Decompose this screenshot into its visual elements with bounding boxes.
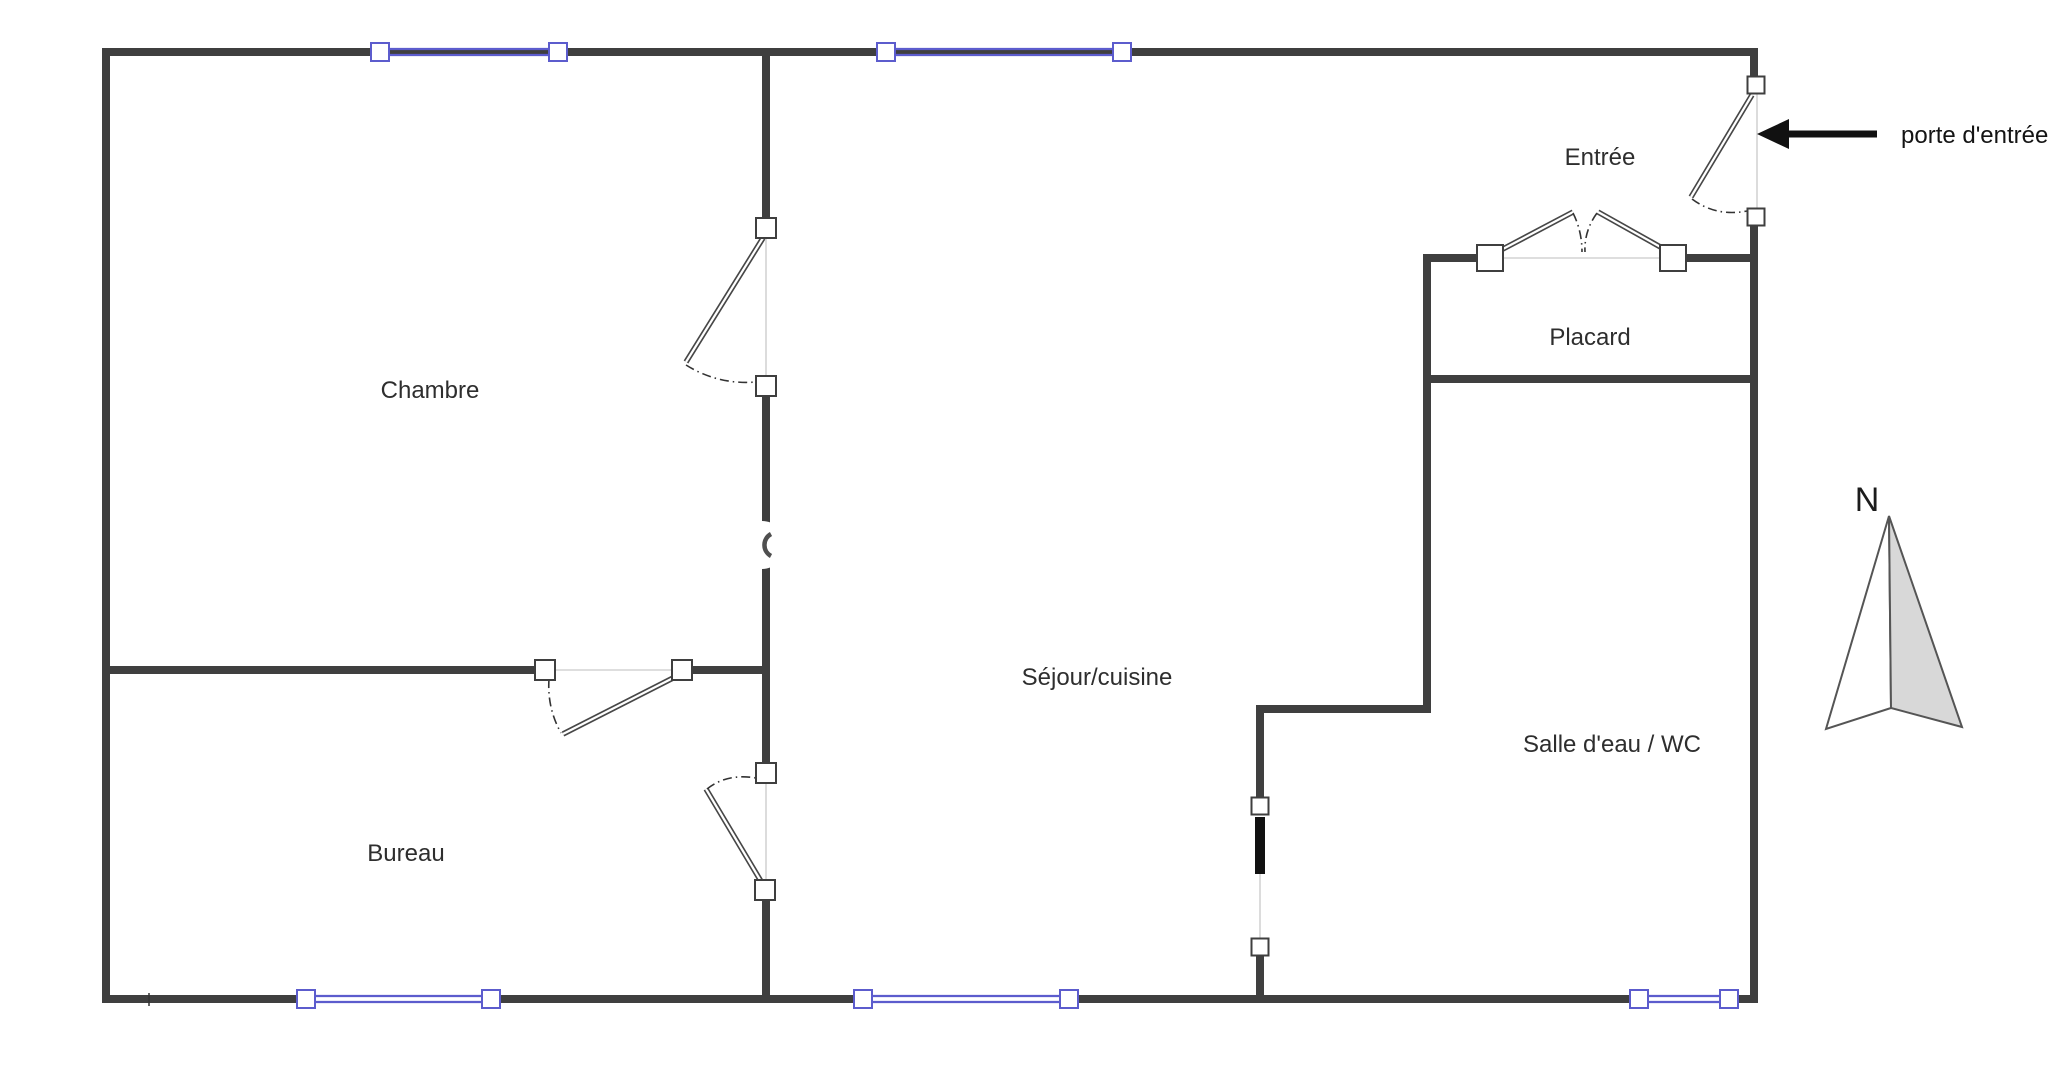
floor-plan-page: porte d'entrée N Chambre Bureau Séjour/c…	[0, 0, 2066, 1080]
window-end-square	[854, 990, 872, 1008]
window-end-square	[297, 990, 315, 1008]
room-label-bureau: Bureau	[367, 840, 444, 867]
entrance-arrow-shaft	[1789, 131, 1877, 138]
window-end-square	[1060, 990, 1078, 1008]
door-frame-square	[1252, 798, 1269, 815]
window-end-square	[482, 990, 500, 1008]
window-end-squares	[297, 43, 1738, 1008]
windows	[297, 43, 1738, 1008]
window-end-square	[1113, 43, 1131, 61]
window-end-square	[371, 43, 389, 61]
window-glass-lines	[306, 49, 1729, 1002]
window-end-square	[877, 43, 895, 61]
wall-segments	[102, 48, 1758, 1003]
door-frame-square	[1748, 77, 1765, 94]
entrance-arrow-head-icon	[1757, 119, 1789, 149]
doors	[535, 77, 1765, 956]
door-swing-arcs	[549, 199, 1747, 789]
north-compass-icon: N	[1826, 481, 1962, 729]
door-frame-square	[755, 880, 775, 900]
room-label-sejour-cuisine: Séjour/cuisine	[1022, 664, 1173, 691]
window-end-square	[1630, 990, 1648, 1008]
compass-left-blade	[1826, 516, 1891, 729]
watermark-disc	[738, 521, 786, 569]
room-label-entree: Entrée	[1565, 144, 1636, 171]
door-frame-square	[672, 660, 692, 680]
walls	[102, 48, 1758, 1006]
door-frame-square	[1660, 245, 1686, 271]
door-frame-square	[1477, 245, 1503, 271]
sliding-door-leaf	[1255, 817, 1265, 874]
door-frame-squares	[535, 77, 1765, 956]
door-frame-square	[1748, 209, 1765, 226]
watermark	[738, 521, 786, 569]
door-frame-square	[756, 376, 776, 396]
room-label-salle-eau-wc: Salle d'eau / WC	[1523, 731, 1701, 758]
compass-north-label: N	[1855, 481, 1880, 519]
door-frame-square	[1252, 939, 1269, 956]
room-label-placard: Placard	[1549, 324, 1630, 351]
door-frame-square	[535, 660, 555, 680]
window-end-square	[549, 43, 567, 61]
entrance-door-label: porte d'entrée	[1901, 122, 2048, 149]
room-label-chambre: Chambre	[381, 377, 480, 404]
door-frame-square	[756, 763, 776, 783]
door-frame-square	[756, 218, 776, 238]
entrance-door-callout: porte d'entrée	[1757, 119, 2048, 149]
window-end-square	[1720, 990, 1738, 1008]
compass-right-blade	[1889, 516, 1962, 727]
floor-plan: porte d'entrée N Chambre Bureau Séjour/c…	[0, 0, 2066, 1080]
